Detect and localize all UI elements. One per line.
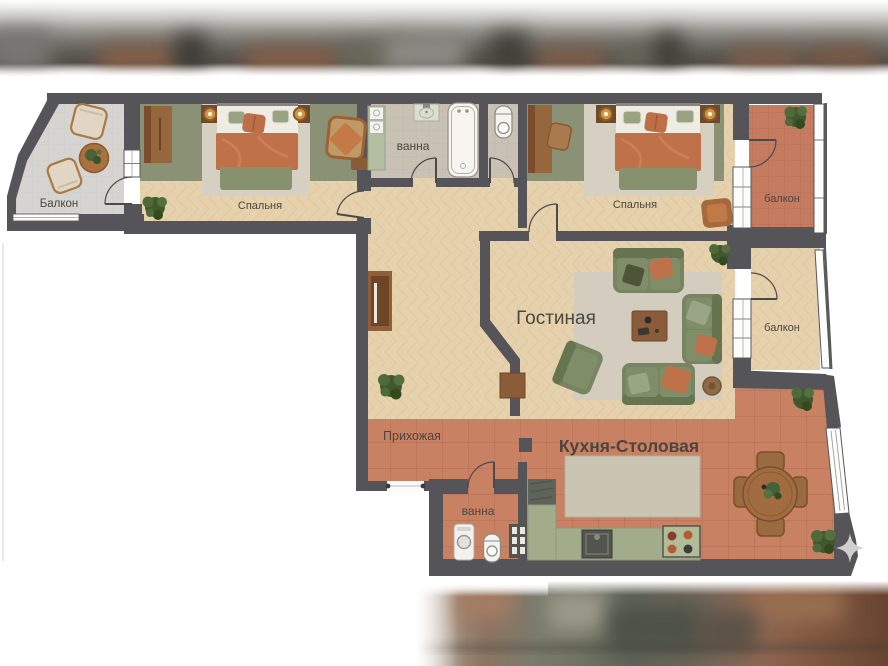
svg-text:балкон: балкон xyxy=(764,322,800,334)
svg-text:Балкон: Балкон xyxy=(40,198,79,210)
svg-text:Кухня-Столовая: Кухня-Столовая xyxy=(559,436,699,456)
svg-text:ванна: ванна xyxy=(462,504,495,518)
svg-text:Спальня: Спальня xyxy=(238,200,282,212)
svg-text:Спальня: Спальня xyxy=(613,199,657,211)
svg-text:ванна: ванна xyxy=(397,139,430,153)
svg-text:Прихожая: Прихожая xyxy=(383,429,441,443)
svg-text:балкон: балкон xyxy=(764,193,800,205)
svg-text:Гостиная: Гостиная xyxy=(516,308,596,329)
